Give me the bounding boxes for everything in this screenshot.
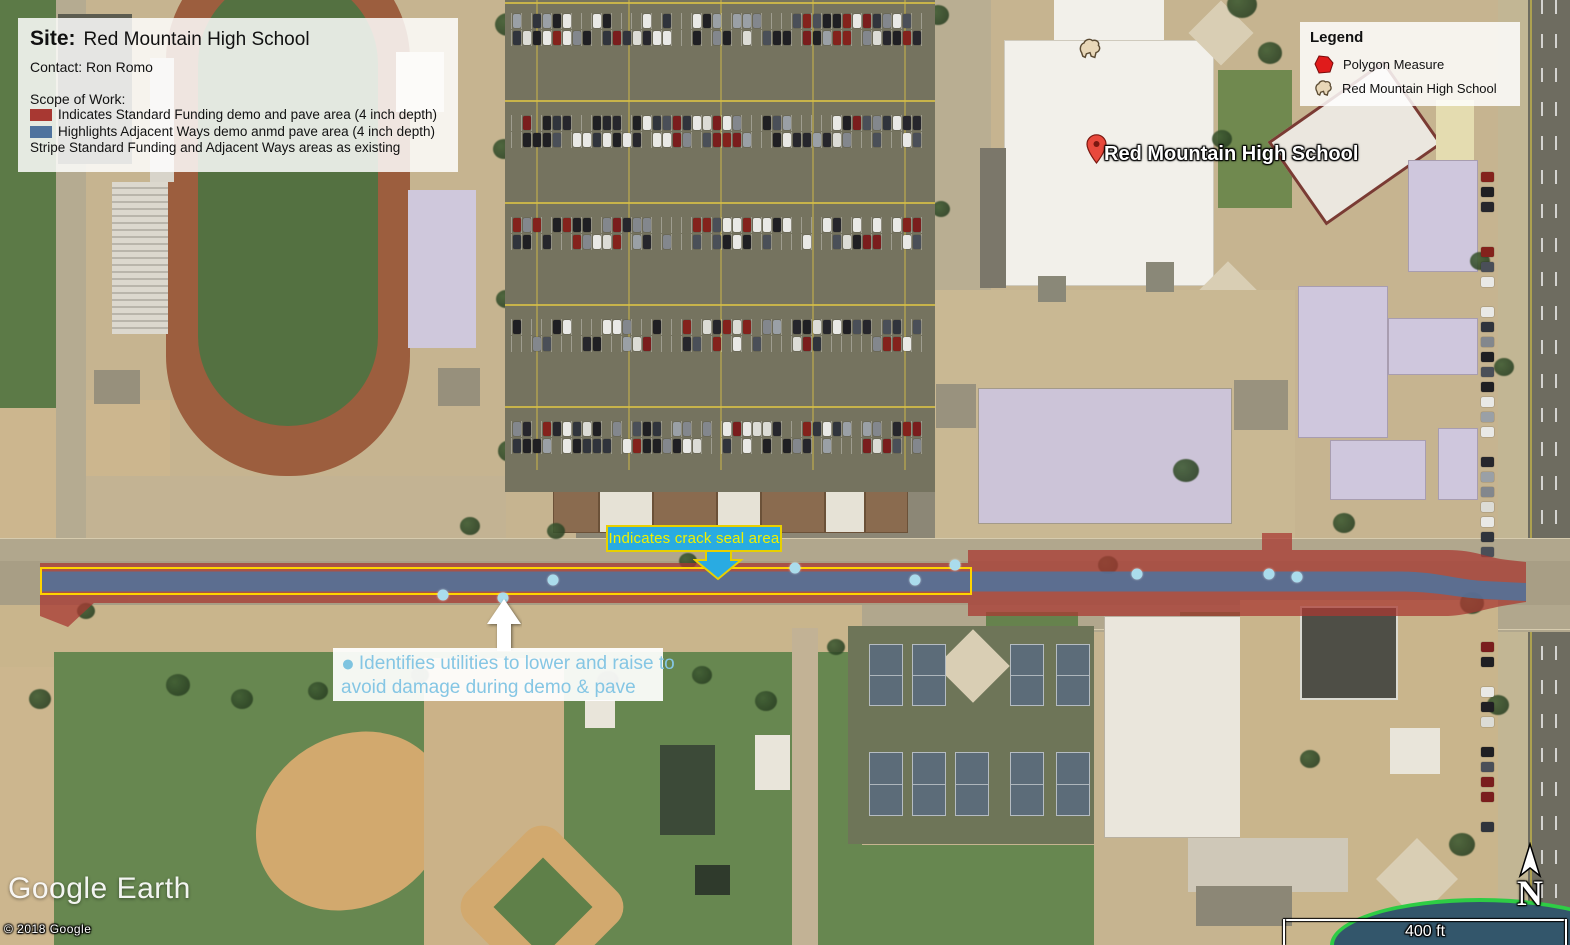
tennis-court	[869, 644, 903, 706]
parked-car	[813, 320, 821, 334]
parked-car	[513, 218, 521, 232]
parked-car	[1481, 657, 1494, 667]
parked-car	[653, 422, 661, 436]
tree-canopy	[231, 689, 253, 709]
parked-car	[713, 31, 721, 45]
building-bottom-mid	[1188, 838, 1348, 892]
parked-car	[523, 133, 531, 147]
parked-car	[743, 14, 751, 28]
parked-car	[1481, 822, 1494, 832]
parked-car	[613, 116, 621, 130]
parked-car	[633, 116, 641, 130]
parked-car	[843, 31, 851, 45]
parked-car	[803, 133, 811, 147]
field-shed-1	[585, 700, 615, 728]
north-label: N	[1508, 878, 1552, 908]
parked-car	[733, 320, 741, 334]
parked-car	[603, 235, 611, 249]
parked-car	[553, 14, 561, 28]
parked-car	[873, 439, 881, 453]
parked-car	[823, 31, 831, 45]
tree-canopy	[460, 517, 480, 535]
parked-car	[833, 422, 841, 436]
parked-car	[593, 422, 601, 436]
parked-car	[823, 133, 831, 147]
parked-car	[583, 439, 591, 453]
parked-car	[613, 133, 621, 147]
parked-car	[533, 218, 541, 232]
parked-car	[843, 14, 851, 28]
scope-of-work-heading: Scope of Work:	[30, 91, 446, 107]
parked-car	[643, 116, 651, 130]
parked-car	[603, 439, 611, 453]
parked-car	[813, 337, 821, 351]
parked-car	[843, 235, 851, 249]
parked-car	[793, 337, 801, 351]
parked-car	[623, 218, 631, 232]
parked-car	[703, 116, 711, 130]
school-west-shadow	[980, 148, 1006, 288]
parked-car	[703, 218, 711, 232]
parked-car	[763, 439, 771, 453]
parked-car	[683, 116, 691, 130]
parked-car	[693, 218, 701, 232]
parked-car	[1481, 202, 1494, 212]
parked-car	[893, 320, 901, 334]
parked-car	[783, 218, 791, 232]
parked-car	[563, 439, 571, 453]
lavender-4	[1330, 440, 1426, 500]
scale-bar-line	[1283, 919, 1567, 921]
parked-car	[763, 218, 771, 232]
parked-car	[1481, 547, 1494, 557]
parked-car	[613, 235, 621, 249]
parked-car	[623, 31, 631, 45]
parked-car	[743, 235, 751, 249]
parked-car	[813, 133, 821, 147]
school-placemark-icon	[1314, 80, 1333, 97]
parked-car	[853, 218, 861, 232]
parked-car	[643, 14, 651, 28]
parked-car	[753, 422, 761, 436]
parked-car	[733, 422, 741, 436]
parked-car	[813, 31, 821, 45]
parked-car	[733, 337, 741, 351]
parked-car	[853, 116, 861, 130]
parked-car	[563, 31, 571, 45]
utilities-callout: ●Identifies utilities to lower and raise…	[333, 648, 663, 701]
parked-car	[803, 320, 811, 334]
parked-car	[883, 439, 891, 453]
placemark-label: Red Mountain High School	[1104, 143, 1358, 166]
crack-seal-extent-rectangle	[40, 567, 972, 595]
parked-car	[643, 218, 651, 232]
parked-car	[713, 14, 721, 28]
parked-car	[1481, 247, 1494, 257]
parked-car	[603, 133, 611, 147]
parked-car	[863, 14, 871, 28]
school-entry-1	[1146, 262, 1174, 292]
pavilion-2	[438, 368, 480, 406]
parked-car	[653, 439, 661, 453]
parked-car	[813, 422, 821, 436]
scope-adjacent-ways-text: Highlights Adjacent Ways demo anmd pave …	[58, 124, 435, 141]
parked-car	[563, 218, 571, 232]
scale-bar: 400 ft	[1283, 915, 1567, 945]
parked-car	[653, 31, 661, 45]
google-earth-logo: Google Earth	[8, 872, 191, 906]
parked-car	[863, 439, 871, 453]
parked-car	[1481, 642, 1494, 652]
parked-car	[573, 235, 581, 249]
tennis-court	[1010, 752, 1044, 816]
parked-car	[713, 218, 721, 232]
scope-note: Stripe Standard Funding and Adjacent Way…	[30, 140, 446, 157]
parked-car	[773, 116, 781, 130]
parked-car	[853, 14, 861, 28]
parked-car	[813, 14, 821, 28]
parked-car	[1481, 352, 1494, 362]
parked-car	[633, 235, 641, 249]
parked-car	[663, 439, 671, 453]
shed-white	[1390, 728, 1440, 774]
parked-car	[533, 31, 541, 45]
parked-car	[743, 218, 751, 232]
parked-car	[553, 116, 561, 130]
parked-car	[593, 116, 601, 130]
parked-car	[513, 320, 521, 334]
tree-canopy	[29, 689, 51, 709]
parked-car	[733, 14, 741, 28]
parked-car	[1481, 187, 1494, 197]
parked-car	[1481, 382, 1494, 392]
parked-car	[913, 133, 921, 147]
tree-canopy	[547, 523, 565, 539]
parked-car	[873, 337, 881, 351]
utilities-arrow-icon	[486, 599, 522, 651]
parked-car	[773, 320, 781, 334]
parked-car	[773, 422, 781, 436]
parked-car	[843, 422, 851, 436]
field-shed-2	[755, 735, 790, 790]
parked-car	[773, 133, 781, 147]
school-entry-2	[1038, 276, 1066, 302]
parked-car	[523, 116, 531, 130]
tennis-court	[1056, 644, 1090, 706]
parked-car	[593, 439, 601, 453]
parked-car	[593, 133, 601, 147]
parked-car	[723, 116, 731, 130]
parked-car	[573, 422, 581, 436]
polygon-measure-icon	[1314, 55, 1334, 74]
parked-car	[853, 320, 861, 334]
parked-car	[823, 422, 831, 436]
parked-car	[713, 116, 721, 130]
legend-item-polygon-label: Polygon Measure	[1343, 57, 1444, 72]
parked-car	[833, 218, 841, 232]
parked-car	[573, 31, 581, 45]
parked-car	[903, 133, 911, 147]
parked-car	[523, 439, 531, 453]
parked-car	[843, 320, 851, 334]
parked-car	[913, 320, 921, 334]
parked-car	[873, 218, 881, 232]
parked-car	[903, 218, 911, 232]
adjacent-ways-swatch	[30, 126, 52, 138]
site-name: Red Mountain High School	[84, 29, 310, 51]
parked-car	[763, 31, 771, 45]
parked-car	[893, 337, 901, 351]
parked-car	[623, 337, 631, 351]
parked-car	[633, 439, 641, 453]
pavilion-1	[94, 370, 140, 404]
parked-car	[873, 31, 881, 45]
parked-car	[683, 439, 691, 453]
parked-car	[1481, 792, 1494, 802]
tree-canopy	[1333, 513, 1355, 533]
parking-lot	[505, 0, 935, 492]
pavilion-3	[936, 384, 976, 428]
legend-item-school-label: Red Mountain High School	[1342, 81, 1497, 96]
parked-car	[903, 422, 911, 436]
parked-car	[783, 439, 791, 453]
parked-car	[653, 320, 661, 334]
parked-car	[783, 31, 791, 45]
parked-car	[823, 439, 831, 453]
parked-car	[513, 31, 521, 45]
parked-car	[833, 14, 841, 28]
parked-car	[693, 31, 701, 45]
parked-car	[863, 320, 871, 334]
parked-car	[633, 31, 641, 45]
parked-car	[763, 320, 771, 334]
parked-car	[913, 439, 921, 453]
parked-car	[883, 31, 891, 45]
parked-car	[843, 133, 851, 147]
parked-car	[643, 235, 651, 249]
parked-car	[783, 133, 791, 147]
parked-car	[803, 14, 811, 28]
parked-car	[533, 337, 541, 351]
parked-car	[823, 218, 831, 232]
parked-car	[583, 235, 591, 249]
parked-car	[713, 320, 721, 334]
parked-car	[833, 116, 841, 130]
parked-car	[523, 422, 531, 436]
bleachers	[112, 182, 168, 334]
mid-lavender-building	[978, 388, 1232, 524]
parked-car	[593, 337, 601, 351]
tree-canopy	[755, 691, 777, 711]
parked-car	[743, 133, 751, 147]
field-shed-3	[695, 865, 730, 895]
parking-patch-bottom	[1196, 886, 1292, 926]
parked-car	[553, 320, 561, 334]
parked-car	[893, 422, 901, 436]
strip-mall-unit	[825, 487, 865, 533]
parked-car	[903, 31, 911, 45]
parked-car	[673, 422, 681, 436]
parked-car	[803, 235, 811, 249]
parked-car	[573, 218, 581, 232]
parked-car	[553, 133, 561, 147]
dirt-mid-left	[86, 476, 506, 542]
parked-car	[903, 14, 911, 28]
parked-car	[1481, 502, 1494, 512]
parked-car	[763, 235, 771, 249]
parked-car	[1481, 702, 1494, 712]
parked-car	[643, 31, 651, 45]
parked-car	[743, 320, 751, 334]
parked-car	[843, 116, 851, 130]
parked-car	[523, 218, 531, 232]
parked-car	[703, 133, 711, 147]
parked-car	[793, 439, 801, 453]
parked-car	[763, 116, 771, 130]
parked-car	[723, 320, 731, 334]
parked-car	[863, 31, 871, 45]
parked-car	[1481, 747, 1494, 757]
parked-car	[653, 133, 661, 147]
parked-car	[613, 218, 621, 232]
parked-car	[563, 422, 571, 436]
path-vertical	[792, 628, 818, 945]
parked-car	[823, 320, 831, 334]
parked-car	[743, 439, 751, 453]
utility-dot-icon: ●	[341, 650, 355, 676]
parked-car	[633, 422, 641, 436]
parked-car	[733, 235, 741, 249]
parked-car	[1481, 777, 1494, 787]
lavender-2	[1298, 286, 1388, 438]
parked-car	[543, 439, 551, 453]
parked-car	[1481, 472, 1494, 482]
parked-car	[513, 235, 521, 249]
tree-canopy	[308, 682, 328, 700]
parked-car	[1481, 687, 1494, 697]
site-contact: Contact: Ron Romo	[30, 59, 446, 75]
parked-car	[833, 31, 841, 45]
pavilion-4	[1234, 380, 1288, 430]
parked-car	[743, 422, 751, 436]
parked-car	[853, 235, 861, 249]
legend-item-polygon-measure: Polygon Measure	[1310, 52, 1510, 76]
parked-car	[603, 320, 611, 334]
parked-car	[613, 31, 621, 45]
parked-car	[1481, 322, 1494, 332]
parked-car	[913, 235, 921, 249]
parked-car	[553, 218, 561, 232]
parked-car	[583, 133, 591, 147]
parked-car	[543, 116, 551, 130]
parked-car	[633, 337, 641, 351]
parked-car	[733, 116, 741, 130]
parked-car	[613, 320, 621, 334]
parked-car	[893, 116, 901, 130]
standard-funding-swatch	[30, 109, 52, 121]
parked-car	[703, 320, 711, 334]
parked-car	[913, 116, 921, 130]
parked-car	[833, 235, 841, 249]
parked-car	[1481, 367, 1494, 377]
parked-car	[883, 14, 891, 28]
parked-car	[693, 337, 701, 351]
parked-car	[1481, 762, 1494, 772]
crack-seal-callout: Indicates crack seal area	[606, 525, 782, 552]
parked-car	[533, 14, 541, 28]
parked-car	[563, 116, 571, 130]
parked-car	[513, 14, 521, 28]
tree-canopy	[1494, 358, 1514, 376]
parked-car	[893, 31, 901, 45]
tree-canopy	[1460, 592, 1484, 614]
parked-car	[1481, 487, 1494, 497]
parked-car	[1481, 457, 1494, 467]
parked-car	[643, 422, 651, 436]
parked-car	[1481, 412, 1494, 422]
parked-car	[533, 439, 541, 453]
parked-car	[753, 218, 761, 232]
scope-standard-funding-text: Indicates Standard Funding demo and pave…	[58, 107, 437, 124]
parked-car	[683, 133, 691, 147]
parked-car	[743, 31, 751, 45]
parked-car	[713, 337, 721, 351]
parked-car	[653, 116, 661, 130]
parked-car	[673, 116, 681, 130]
parked-car	[533, 133, 541, 147]
parked-car	[1481, 337, 1494, 347]
parked-car	[723, 439, 731, 453]
site-info-box: Site: Red Mountain High School Contact: …	[18, 18, 458, 172]
parked-car	[1481, 307, 1494, 317]
parked-car	[863, 422, 871, 436]
parked-car	[723, 31, 731, 45]
parked-car	[593, 235, 601, 249]
parked-car	[523, 235, 531, 249]
parked-car	[1481, 532, 1494, 542]
parked-car	[573, 133, 581, 147]
tree-canopy	[692, 666, 712, 684]
parked-car	[543, 422, 551, 436]
parked-car	[913, 31, 921, 45]
field-stands	[660, 745, 715, 835]
tennis-court	[1056, 752, 1090, 816]
copyright-text: © 2018 Google	[4, 922, 91, 936]
parked-car	[793, 14, 801, 28]
parked-car	[563, 320, 571, 334]
parked-car	[803, 337, 811, 351]
parked-car	[543, 31, 551, 45]
parked-car	[873, 422, 881, 436]
parked-car	[753, 14, 761, 28]
parked-car	[643, 439, 651, 453]
parked-car	[553, 31, 561, 45]
parked-car	[793, 320, 801, 334]
parked-car	[803, 439, 811, 453]
tennis-court	[869, 752, 903, 816]
parked-car	[823, 14, 831, 28]
parked-car	[603, 116, 611, 130]
parked-car	[683, 422, 691, 436]
parked-car	[1481, 262, 1494, 272]
tree-canopy	[166, 674, 190, 696]
parked-car	[683, 320, 691, 334]
parked-car	[613, 422, 621, 436]
parked-car	[543, 133, 551, 147]
parked-car	[723, 235, 731, 249]
parked-car	[663, 235, 671, 249]
median-right	[1498, 0, 1528, 945]
